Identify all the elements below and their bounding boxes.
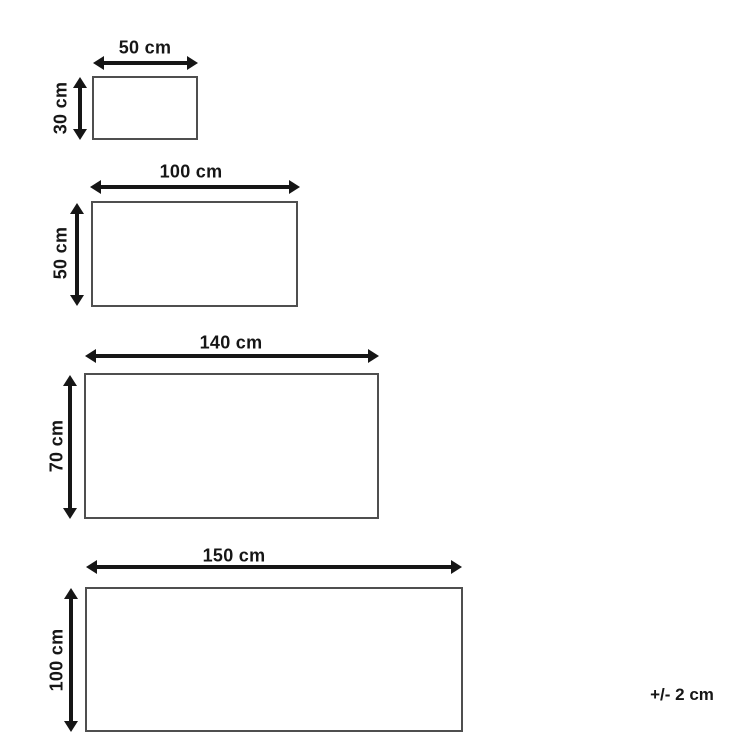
width-arrow xyxy=(101,185,289,189)
height-arrow xyxy=(75,214,79,295)
height-arrow xyxy=(68,386,72,508)
dimension-rectangle xyxy=(85,587,463,732)
tolerance-note: +/- 2 cm xyxy=(650,685,714,705)
height-label: 30 cm xyxy=(51,82,72,135)
dimension-rectangle xyxy=(84,373,379,519)
width-label: 50 cm xyxy=(119,38,172,59)
height-arrow xyxy=(78,88,82,129)
dimension-rectangle xyxy=(91,201,298,307)
width-label: 150 cm xyxy=(203,546,266,567)
width-arrow xyxy=(104,61,187,65)
height-label: 70 cm xyxy=(47,420,68,473)
width-label: 100 cm xyxy=(160,162,223,183)
size-diagram-canvas: 50 cm 30 cm 100 cm 50 cm 140 cm 70 cm 15… xyxy=(0,0,756,756)
height-label: 100 cm xyxy=(47,629,68,692)
width-label: 140 cm xyxy=(200,333,263,354)
height-label: 50 cm xyxy=(51,227,72,280)
dimension-rectangle xyxy=(92,76,198,140)
width-arrow xyxy=(96,354,368,358)
height-arrow xyxy=(69,599,73,721)
width-arrow xyxy=(97,565,451,569)
